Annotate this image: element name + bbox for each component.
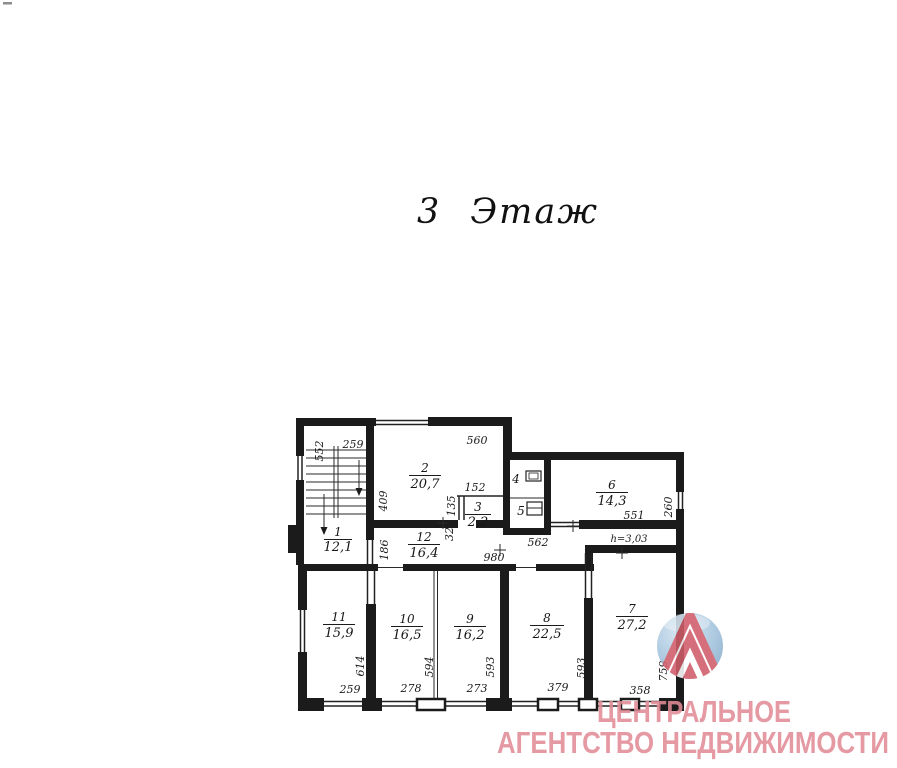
room-label-4: 4 <box>511 472 520 486</box>
dim-room6-bottom: 551 <box>624 509 645 522</box>
room-label-6: 6 14,3 <box>596 478 628 509</box>
dim-room2-left: 409 <box>377 491 390 513</box>
page-title: 3 Этаж <box>417 192 599 232</box>
room-label-9: 9 16,2 <box>454 612 486 643</box>
room-label-2: 2 20,7 <box>409 461 441 492</box>
svg-text:5: 5 <box>517 504 525 518</box>
scan-artifact <box>3 2 12 5</box>
svg-text:16,4: 16,4 <box>410 546 439 561</box>
svg-text:3: 3 <box>474 500 482 514</box>
dim-corridor-width: 980 <box>484 551 505 564</box>
dim-room10-side: 594 <box>423 657 436 678</box>
floor-plan-drawing: 3 Этаж <box>0 0 897 768</box>
svg-text:12: 12 <box>416 530 431 544</box>
svg-text:16,5: 16,5 <box>393 628 422 643</box>
room-label-10: 10 16,5 <box>391 612 423 643</box>
svg-text:9: 9 <box>466 612 474 626</box>
svg-text:15,9: 15,9 <box>325 626 354 641</box>
svg-text:27,2: 27,2 <box>617 618 647 633</box>
svg-text:8: 8 <box>543 611 551 625</box>
ceiling-height-note: h=3,03 <box>610 534 647 545</box>
dim-stair-top: 259 <box>342 438 364 451</box>
dim-bottom-room11: 259 <box>339 683 361 696</box>
watermark-line-2: АГЕНТСТВО НЕДВИЖИМОСТИ <box>497 725 889 760</box>
svg-text:22,5: 22,5 <box>532 627 562 642</box>
dim-room6-right: 260 <box>662 497 675 519</box>
svg-text:10: 10 <box>399 612 415 626</box>
dim-room11-side: 614 <box>354 656 367 677</box>
room-label-3: 3 2,2 <box>465 500 491 530</box>
floor-plan-page: 3 Этаж <box>0 0 897 768</box>
dim-below-wc: 562 <box>528 536 549 549</box>
svg-text:14,3: 14,3 <box>598 494 627 509</box>
dim-room3-top: 152 <box>465 481 486 494</box>
dim-room8-side: 593 <box>575 658 588 679</box>
svg-text:16,2: 16,2 <box>456 628 485 643</box>
dim-corridor-left: 186 <box>378 540 391 561</box>
svg-text:20,7: 20,7 <box>410 477 441 492</box>
plumbing-fixtures <box>526 471 542 515</box>
room-label-7: 7 27,2 <box>616 602 648 633</box>
watermark-line-1: ЦЕНТРАЛЬНОЕ <box>597 694 791 729</box>
dim-room2-top: 560 <box>467 434 488 447</box>
room-label-8: 8 22,5 <box>530 611 564 642</box>
svg-text:1: 1 <box>334 525 342 539</box>
room-label-5: 5 <box>517 504 525 518</box>
dim-bottom-room9: 273 <box>466 682 488 695</box>
room-label-12: 12 16,4 <box>408 530 440 561</box>
svg-text:12,1: 12,1 <box>324 540 353 555</box>
dim-room3-left-lower: 32 <box>443 527 456 541</box>
dim-bottom-room8: 379 <box>548 681 569 694</box>
room-label-1: 1 12,1 <box>324 525 353 555</box>
svg-text:7: 7 <box>628 602 636 616</box>
dim-room9-side: 593 <box>484 657 497 678</box>
svg-text:6: 6 <box>608 478 616 492</box>
room-label-11: 11 15,9 <box>323 610 355 641</box>
svg-text:4: 4 <box>511 472 520 486</box>
dim-stair-left: 552 <box>313 441 326 462</box>
svg-text:2: 2 <box>420 461 429 475</box>
svg-text:2,2: 2,2 <box>467 515 489 530</box>
dim-room3-left-upper: 135 <box>445 496 458 517</box>
dim-bottom-room10: 278 <box>400 682 422 695</box>
svg-text:11: 11 <box>331 610 346 624</box>
